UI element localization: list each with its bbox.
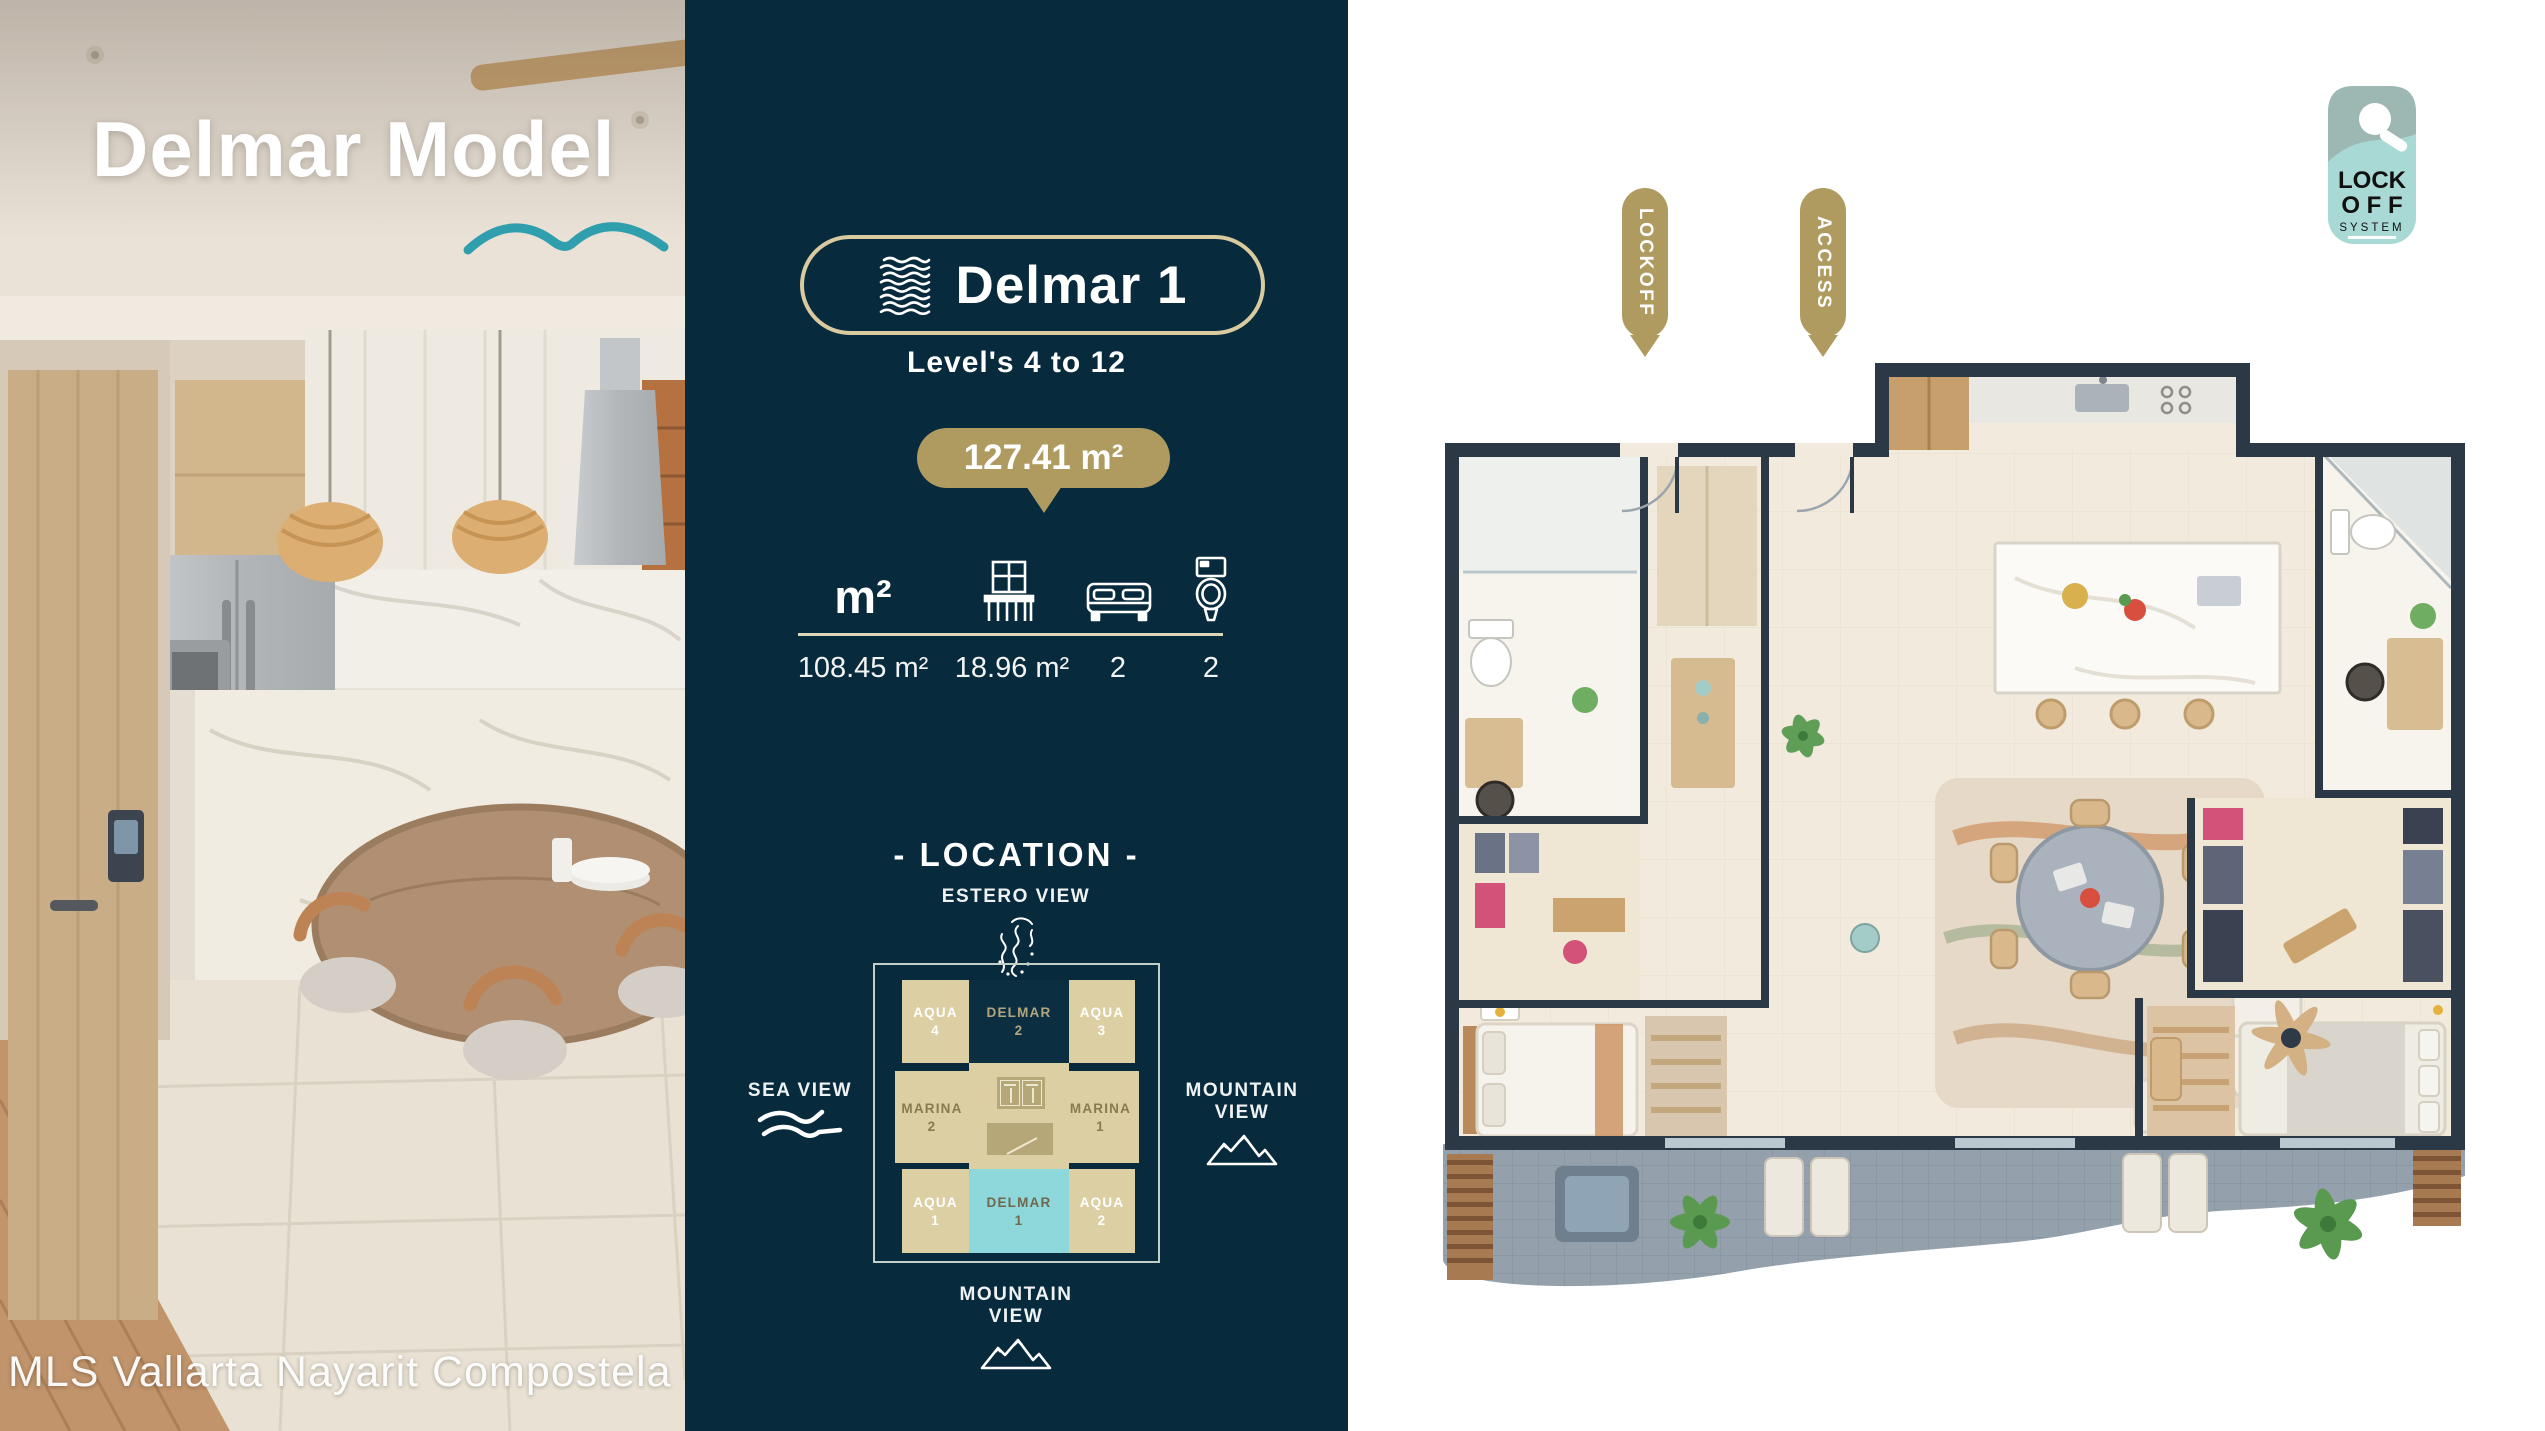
spec-interior-area: m² — [793, 550, 933, 624]
access-tag-label: ACCESS — [1812, 216, 1834, 310]
hanger-line-lock: LOCK — [2338, 167, 2407, 194]
spec-divider — [798, 633, 1223, 636]
levels-label: Level's 4 to 12 — [685, 346, 1348, 380]
closet-left — [1459, 824, 1640, 1000]
unit-name: Delmar 1 — [956, 255, 1188, 316]
elevators-icon — [997, 1077, 1045, 1109]
cell-number: 1 — [931, 1213, 940, 1228]
cell-label: AQUA — [913, 1195, 958, 1210]
cell-number: 1 — [1096, 1119, 1105, 1134]
interior-photo: Delmar Model MLS Vallarta Nayarit Compos… — [0, 0, 685, 1431]
cell-number: 1 — [1015, 1213, 1024, 1228]
sea-view-label: SEA VIEW — [748, 1080, 852, 1102]
cell-label: AQUA — [1080, 1005, 1125, 1020]
hanger-line-off: O F F — [2341, 192, 2402, 219]
grid-cell-aqua-1: AQUA1 — [902, 1169, 969, 1253]
lockoff-tag-label: LOCKOFF — [1634, 208, 1656, 317]
bar-stool — [2185, 700, 2213, 728]
cell-label: MARINA — [1070, 1101, 1131, 1116]
cell-number: 2 — [1015, 1023, 1024, 1038]
mountain-view-right-label: MOUNTAIN VIEW — [1162, 1080, 1322, 1124]
mountain-view-bottom-label: MOUNTAIN VIEW — [941, 1284, 1091, 1328]
toilet-icon — [1191, 556, 1231, 624]
balcony-terrace — [1443, 1144, 2465, 1286]
bar-stool — [2111, 700, 2139, 728]
bathrooms-count: 2 — [1131, 652, 1291, 685]
waves-icon — [878, 255, 932, 315]
grid-cell-aqua-4: AQUA4 — [902, 980, 969, 1063]
bar-stool — [2037, 700, 2065, 728]
sea-waves-icon — [756, 1108, 844, 1146]
grid-cell-marina-2: MARINA2 — [895, 1071, 969, 1163]
stairs-icon — [987, 1123, 1053, 1155]
grid-cell-delmar-1-highlighted: DELMAR1 — [969, 1169, 1069, 1253]
cell-label: DELMAR — [987, 1195, 1052, 1210]
closet-right — [2195, 798, 2451, 990]
wave-underline-icon — [462, 216, 672, 262]
total-area-badge: 127.41 m² — [917, 428, 1170, 488]
cell-label: AQUA — [1080, 1195, 1125, 1210]
brochure-page: Delmar Model MLS Vallarta Nayarit Compos… — [0, 0, 2545, 1431]
watermark: MLS Vallarta Nayarit Compostela — [8, 1348, 672, 1397]
bathroom-right — [2323, 450, 2451, 790]
info-panel: Delmar 1 Level's 4 to 12 127.41 m² m² — [685, 0, 1348, 1431]
grid-cell-marina-1: MARINA1 — [1062, 1071, 1139, 1163]
access-tag: ACCESS — [1800, 188, 1846, 338]
view-mountain-bottom: MOUNTAIN VIEW — [941, 1284, 1091, 1370]
grid-cell-aqua-2: AQUA2 — [1069, 1169, 1135, 1253]
square-meters-label: m² — [834, 569, 891, 624]
mountain-icon — [1204, 1130, 1280, 1166]
lockoff-tag: LOCKOFF — [1622, 188, 1668, 338]
elevator-icon — [1022, 1080, 1042, 1106]
cell-number: 3 — [1098, 1023, 1107, 1038]
lock-off-system-badge: LOCK O F F SYSTEM — [2322, 78, 2422, 250]
grid-cell-aqua-3: AQUA3 — [1069, 980, 1135, 1063]
mountain-icon — [978, 1334, 1054, 1370]
bedroom-left — [1463, 1004, 1727, 1138]
location-title: - LOCATION - — [685, 836, 1348, 874]
location-grid: AQUA4 DELMAR2 AQUA3 MARINA2 MARINA1 AQUA… — [873, 963, 1160, 1263]
view-sea: SEA VIEW — [725, 1080, 875, 1146]
floor-plan — [1435, 338, 2470, 1318]
cell-label: MARINA — [901, 1101, 962, 1116]
view-mountain-right: MOUNTAIN VIEW — [1162, 1080, 1322, 1166]
balcony-icon — [983, 560, 1035, 624]
interior-photo-art — [0, 0, 685, 1431]
spec-bathrooms — [1141, 550, 1281, 624]
cell-number: 2 — [1098, 1213, 1107, 1228]
grid-cell-delmar-2: DELMAR2 — [969, 980, 1069, 1063]
cell-number: 4 — [931, 1023, 940, 1038]
cell-label: AQUA — [913, 1005, 958, 1020]
interior-area-value: 108.45 m² — [783, 652, 943, 685]
page-title: Delmar Model — [92, 104, 615, 195]
floor-plan-art — [1435, 338, 2470, 1313]
cell-number: 2 — [928, 1119, 937, 1134]
estero-view-label: ESTERO VIEW — [942, 886, 1090, 908]
bathroom-left — [1459, 450, 1640, 818]
unit-name-badge: Delmar 1 — [800, 235, 1265, 335]
elevator-icon — [1000, 1080, 1020, 1106]
hanger-line-system: SYSTEM — [2339, 222, 2404, 234]
total-area-value: 127.41 m² — [964, 438, 1124, 478]
cell-label: DELMAR — [987, 1005, 1052, 1020]
